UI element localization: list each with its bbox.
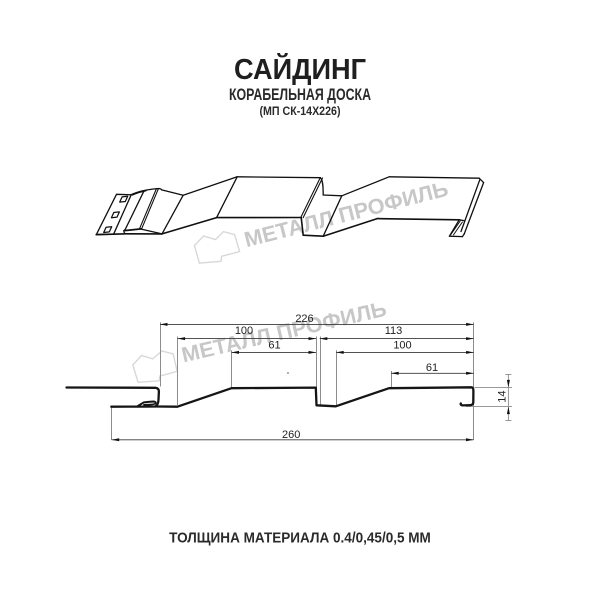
svg-text:(МП СК-14Х226): (МП СК-14Х226): [260, 104, 341, 118]
svg-text:226: 226: [295, 313, 313, 325]
svg-text:КОРАБЕЛЬНАЯ ДОСКА: КОРАБЕЛЬНАЯ ДОСКА: [229, 86, 371, 104]
svg-text:61: 61: [268, 340, 280, 352]
svg-text:260: 260: [282, 429, 300, 441]
svg-text:61: 61: [426, 362, 438, 374]
svg-text:100: 100: [235, 325, 253, 337]
svg-text:14: 14: [497, 390, 509, 402]
svg-text:100: 100: [393, 340, 411, 352]
svg-text:ТОЛЩИНА МАТЕРИАЛА 0.4/0,45/0,5: ТОЛЩИНА МАТЕРИАЛА 0.4/0,45/0,5 ММ: [169, 530, 431, 547]
svg-text:113: 113: [385, 325, 403, 337]
svg-text:САЙДИНГ: САЙДИНГ: [234, 53, 366, 86]
